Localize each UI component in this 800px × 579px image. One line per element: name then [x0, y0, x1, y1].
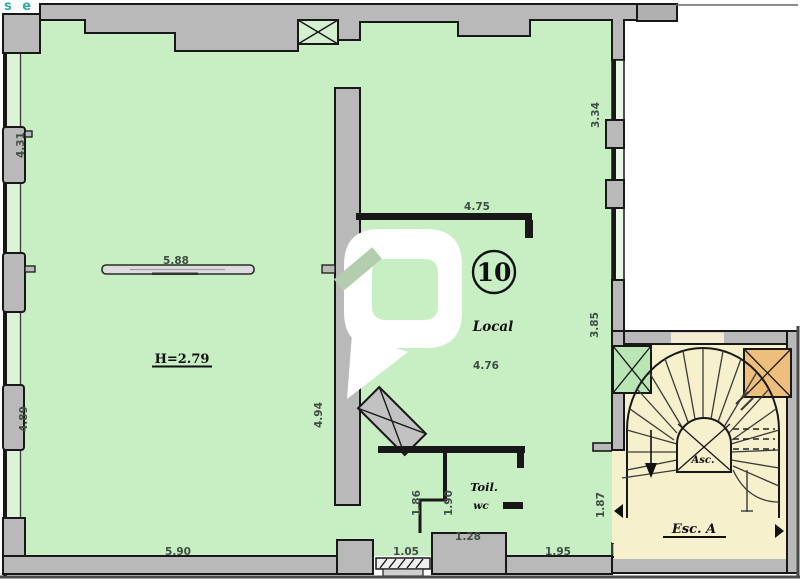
entrance-threshold	[376, 558, 430, 576]
dim-toilet-width: 1.28	[455, 531, 481, 543]
elevator-label: Asc.	[691, 455, 715, 466]
entrance-recess	[383, 569, 423, 576]
partition-left-tick	[322, 265, 335, 273]
dim-left-upper: 4.31	[15, 132, 27, 158]
bottom-wall-left	[3, 556, 337, 574]
left-pilaster-middle-tab	[25, 266, 35, 272]
toilet-door-return	[503, 502, 523, 509]
dim-entrance: 1.05	[393, 546, 419, 558]
light-shaft-green	[613, 346, 651, 393]
left-wall-top-block	[3, 14, 40, 53]
stair-top-wall-gap	[671, 333, 724, 344]
dim-room-bottom: 5.90	[165, 546, 191, 558]
dim-partition: 4.94	[313, 402, 325, 428]
wc-label: wc	[473, 500, 489, 512]
dim-right-upper: 3.34	[590, 102, 602, 128]
dim-radiator: 5.88	[163, 255, 189, 267]
left-pilaster-middle	[3, 253, 25, 312]
toilet-label: Toil.	[470, 480, 498, 494]
dim-toilet-left: 1.86	[411, 490, 423, 516]
dim-inner-wall: 4.75	[464, 201, 490, 213]
ceiling-height-label: H=2.79	[155, 352, 210, 367]
left-bottom-corner-block	[3, 518, 25, 560]
staircase-label: Esc. A	[671, 522, 716, 537]
dim-toilet-right: 1.90	[443, 490, 455, 516]
logo-fragment: s e	[4, 0, 34, 14]
floorplan-drawing: s e 4.31 4.89 3.34 3.85 1.87 4.94 1.86 1…	[0, 0, 800, 579]
floorplan-canvas: s e 4.31 4.89 3.34 3.85 1.87 4.94 1.86 1…	[0, 0, 800, 579]
dim-left-lower: 4.89	[18, 406, 30, 432]
branch-wall-return	[525, 220, 533, 238]
top-wall-duct-box	[298, 20, 338, 44]
right-wall-solid	[612, 280, 624, 333]
scan-border-right	[797, 326, 800, 578]
stair-bottom-wall	[612, 557, 798, 573]
top-wall-end-block	[637, 4, 677, 21]
entrance-jamb-block	[337, 540, 373, 574]
dim-bottom-right: 1.95	[545, 546, 571, 558]
scan-border-bottom	[0, 576, 800, 579]
right-pier-upper	[606, 120, 624, 148]
branch-wall	[356, 213, 532, 220]
dim-right-mid: 3.85	[589, 312, 601, 338]
main-room-floor	[20, 20, 612, 556]
unit-name-label: Local	[472, 319, 514, 335]
stair-doorway-floor	[612, 451, 626, 543]
unit-number: 10	[477, 258, 512, 287]
bottom-wall-right	[506, 556, 612, 574]
dim-right-lower: 1.87	[595, 492, 607, 518]
toilet-north-stub	[517, 453, 524, 468]
dim-local-width: 4.76	[473, 360, 499, 372]
toilet-north-wall	[378, 446, 525, 453]
right-pier-lower	[606, 180, 624, 208]
